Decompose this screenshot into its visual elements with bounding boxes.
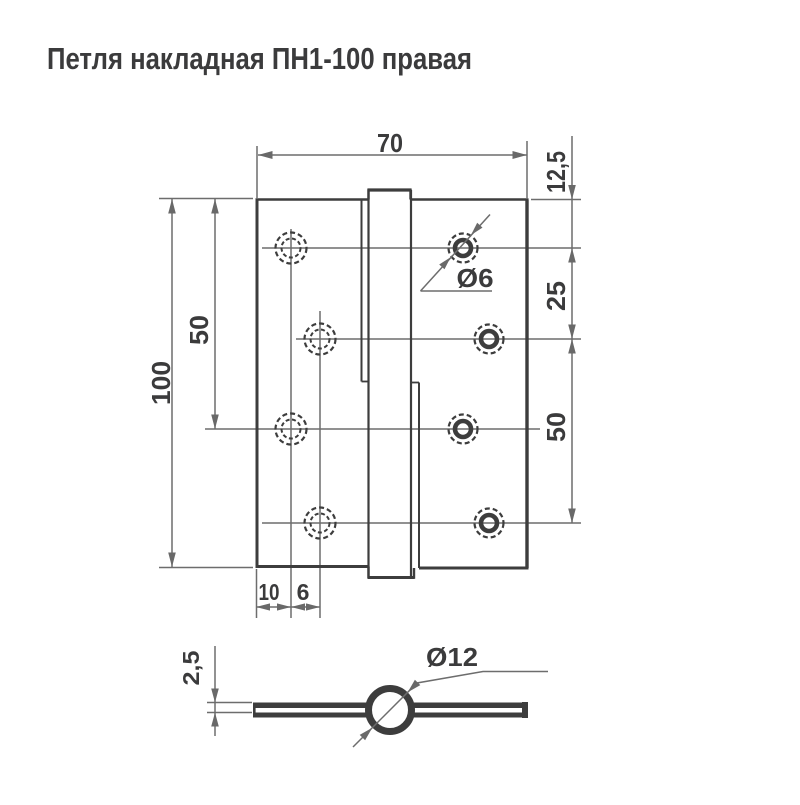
drawing-title: Петля накладная ПН1-100 правая <box>47 41 472 76</box>
extension-line <box>207 703 252 713</box>
dimension-bottom-offsets: 10 6 <box>256 579 320 611</box>
arrowhead <box>568 339 576 354</box>
dim-width-label: 70 <box>377 128 403 158</box>
arrowhead <box>211 415 219 430</box>
dim-lower-span-label: 50 <box>541 412 571 442</box>
pin-cap-bottom <box>369 567 415 578</box>
arrowhead <box>513 151 528 159</box>
dimension-plate-thickness: 2,5 <box>178 646 252 736</box>
arrowhead <box>168 553 176 568</box>
arrowhead <box>211 713 219 727</box>
front-view: 70 100 50 12,5 25 50 <box>146 128 581 618</box>
dim-left-span-label: 50 <box>184 315 214 345</box>
dim-upper-span-label: 25 <box>541 281 571 311</box>
arrowhead <box>568 325 576 340</box>
arrowhead <box>211 689 219 703</box>
dim-top-offset-label: 12,5 <box>541 151 571 193</box>
dim-height-label: 100 <box>146 361 176 405</box>
plate-left-end-cap <box>253 703 256 718</box>
arrowhead <box>568 248 576 263</box>
arrowhead <box>211 199 219 214</box>
arrowhead <box>168 199 176 214</box>
arrowhead <box>568 509 576 524</box>
dimension-right-chain: 12,5 25 50 <box>531 136 581 523</box>
top-view: 2,5 Ø12 <box>178 642 548 747</box>
dimension-width: 70 <box>257 128 527 198</box>
hinge-technical-drawing: Петля накладная ПН1-100 правая <box>0 0 800 800</box>
dimension-left-hole-span: 50 <box>184 199 219 429</box>
plate-right-end-cap <box>522 702 528 718</box>
dim-edge-offset-label: 10 <box>259 579 280 605</box>
arrowhead <box>258 151 273 159</box>
dimension-height: 100 <box>146 199 253 568</box>
dim-barrel-diameter-label: Ø12 <box>426 642 478 672</box>
centerlines <box>205 229 581 618</box>
screw-holes-left-leaf <box>276 233 336 539</box>
dim-hole-diameter-label: Ø6 <box>457 263 494 293</box>
dim-thickness-label: 2,5 <box>178 650 204 685</box>
dim-stagger-label: 6 <box>297 579 310 605</box>
arrowhead <box>408 680 421 693</box>
